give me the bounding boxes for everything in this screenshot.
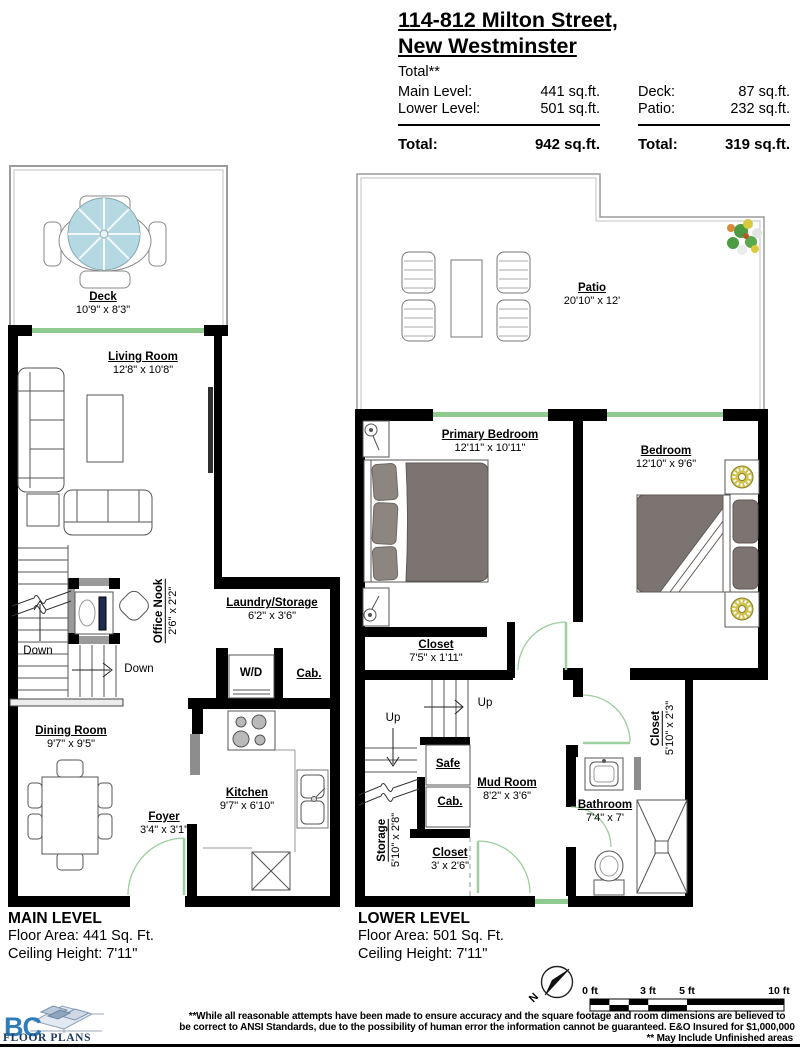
row-value: 942 sq.ft. (535, 136, 600, 153)
room-label-mud-room: Mud Room 8'2" x 3'6" (477, 776, 536, 803)
scale-tick-label: 3 ft (640, 985, 656, 997)
washer-dryer-label: W/D (240, 667, 262, 679)
row-value: 319 sq.ft. (725, 136, 790, 153)
room-label-closet-primary: Closet 7'5" x 1'11" (409, 638, 462, 665)
cabinet-label: Cab. (297, 668, 322, 680)
level-floor-area: Floor Area: 501 Sq. Ft. (358, 928, 504, 946)
row-value: 501 sq.ft. (540, 101, 600, 118)
floorplan-sheet: 114-812 Milton Street, New Westminster T… (0, 0, 800, 1048)
living-room-window (32, 328, 204, 333)
flowers-icon (727, 219, 762, 255)
table-row: Deck: 87 sq.ft. (638, 84, 790, 101)
row-label: Lower Level: (398, 101, 480, 118)
dining-set (28, 760, 112, 870)
total-note: Total** (398, 64, 600, 82)
scale-tick-label: 5 ft (679, 985, 695, 997)
disclaimer-line2: be correct to ANSI Standards, due to the… (179, 1022, 795, 1033)
up-label: Up (386, 712, 401, 724)
room-label-storage: Storage 5'10" x 2'8" (375, 813, 403, 867)
row-label: Patio: (638, 101, 675, 118)
row-label: Total: (638, 136, 678, 153)
bathroom-half-wall (634, 757, 641, 790)
cabinet-label: Cab. (438, 796, 463, 808)
kitchen-half-wall (190, 734, 200, 775)
room-label-patio: Patio 20'10" x 12' (564, 281, 620, 308)
table-total-row: Total: 942 sq.ft. (398, 136, 600, 153)
divider (398, 124, 600, 126)
table-row: Main Level: 441 sq.ft. (398, 84, 600, 101)
foyer-door (128, 838, 184, 895)
row-value: 441 sq.ft. (540, 84, 600, 101)
address-line2: New Westminster (398, 34, 618, 60)
desk-icon (75, 592, 113, 634)
room-label-bedroom: Bedroom 12'10" x 9'6" (636, 444, 696, 471)
tv-icon (208, 387, 213, 473)
down-label: Down (23, 645, 52, 657)
row-label: Main Level: (398, 84, 472, 101)
level-title: LOWER LEVEL (358, 909, 504, 928)
room-label-bathroom: Bathroom 7'4" x 7' (578, 798, 632, 825)
down-label: Down (124, 663, 153, 675)
main-level-summary: MAIN LEVEL Floor Area: 441 Sq. Ft. Ceili… (8, 909, 154, 964)
patio-furniture (402, 252, 530, 341)
level-title: MAIN LEVEL (8, 909, 154, 928)
lamp-icon (731, 598, 753, 620)
area-col-levels: Total** Main Level: 441 sq.ft. Lower Lev… (398, 64, 600, 153)
room-label-dining-room: Dining Room 9'7" x 9'5" (35, 724, 107, 751)
logo-floor-plans-text: FLOOR PLANS (3, 1032, 91, 1044)
safe-label: Safe (436, 758, 460, 770)
level-ceiling-height: Ceiling Height: 7'11" (8, 946, 154, 964)
bedroom-bed (637, 460, 759, 627)
bottom-rule (0, 1044, 800, 1047)
row-value: 87 sq.ft. (738, 84, 790, 101)
stair-landing (10, 699, 123, 706)
level-ceiling-height: Ceiling Height: 7'11" (358, 946, 504, 964)
room-label-closet-bedroom: Closet 5'10" x 2'3" (649, 701, 677, 755)
floorplan-graphics (0, 0, 800, 1048)
divider (638, 124, 790, 126)
office-chair-icon (116, 588, 151, 623)
scale-bar (590, 999, 784, 1011)
disclaimer-line3: ** May Include Unfinished areas (646, 1033, 793, 1044)
room-label-office-nook: Office Nook 2'6" x 2'2" (152, 579, 180, 644)
row-label: Deck: (638, 84, 675, 101)
living-room-furniture (18, 368, 152, 535)
level-floor-area: Floor Area: 441 Sq. Ft. (8, 928, 154, 946)
table-row: Patio: 232 sq.ft. (638, 101, 790, 118)
room-label-living-room: Living Room 12'8" x 10'8" (108, 350, 178, 377)
room-label-closet-small: Closet 3' x 2'6" (431, 846, 469, 873)
logo-house-icon (30, 1006, 104, 1033)
area-col-outdoor: Deck: 87 sq.ft. Patio: 232 sq.ft. Total:… (638, 64, 790, 153)
umbrella-icon (68, 198, 140, 270)
north-compass-icon (542, 967, 573, 998)
lower-level-summary: LOWER LEVEL Floor Area: 501 Sq. Ft. Ceil… (358, 909, 504, 964)
up-label: Up (478, 697, 493, 709)
scale-tick-label: 10 ft (768, 985, 790, 997)
scale-tick-label: 0 ft (582, 985, 598, 997)
row-value: 232 sq.ft. (730, 101, 790, 118)
address-line1: 114-812 Milton Street, (398, 8, 618, 34)
table-row: Lower Level: 501 sq.ft. (398, 101, 600, 118)
row-label: Total: (398, 136, 438, 153)
spacer (638, 64, 790, 82)
room-label-primary-bedroom: Primary Bedroom 12'11" x 10'11" (442, 428, 539, 455)
lamp-icon (731, 466, 753, 488)
room-label-kitchen: Kitchen 9'7" x 6'10" (220, 786, 274, 813)
room-label-foyer: Foyer 3'4" x 3'1" (140, 810, 188, 837)
table-total-row: Total: 319 sq.ft. (638, 136, 790, 153)
area-summary-table: Total** Main Level: 441 sq.ft. Lower Lev… (398, 64, 790, 153)
disclaimer-line1: **While all reasonable attempts have bee… (189, 1011, 786, 1022)
room-label-deck: Deck 10'9" x 8'3" (76, 290, 130, 317)
room-label-laundry: Laundry/Storage 6'2" x 3'6" (226, 596, 317, 623)
page-title: 114-812 Milton Street, New Westminster (398, 8, 618, 60)
